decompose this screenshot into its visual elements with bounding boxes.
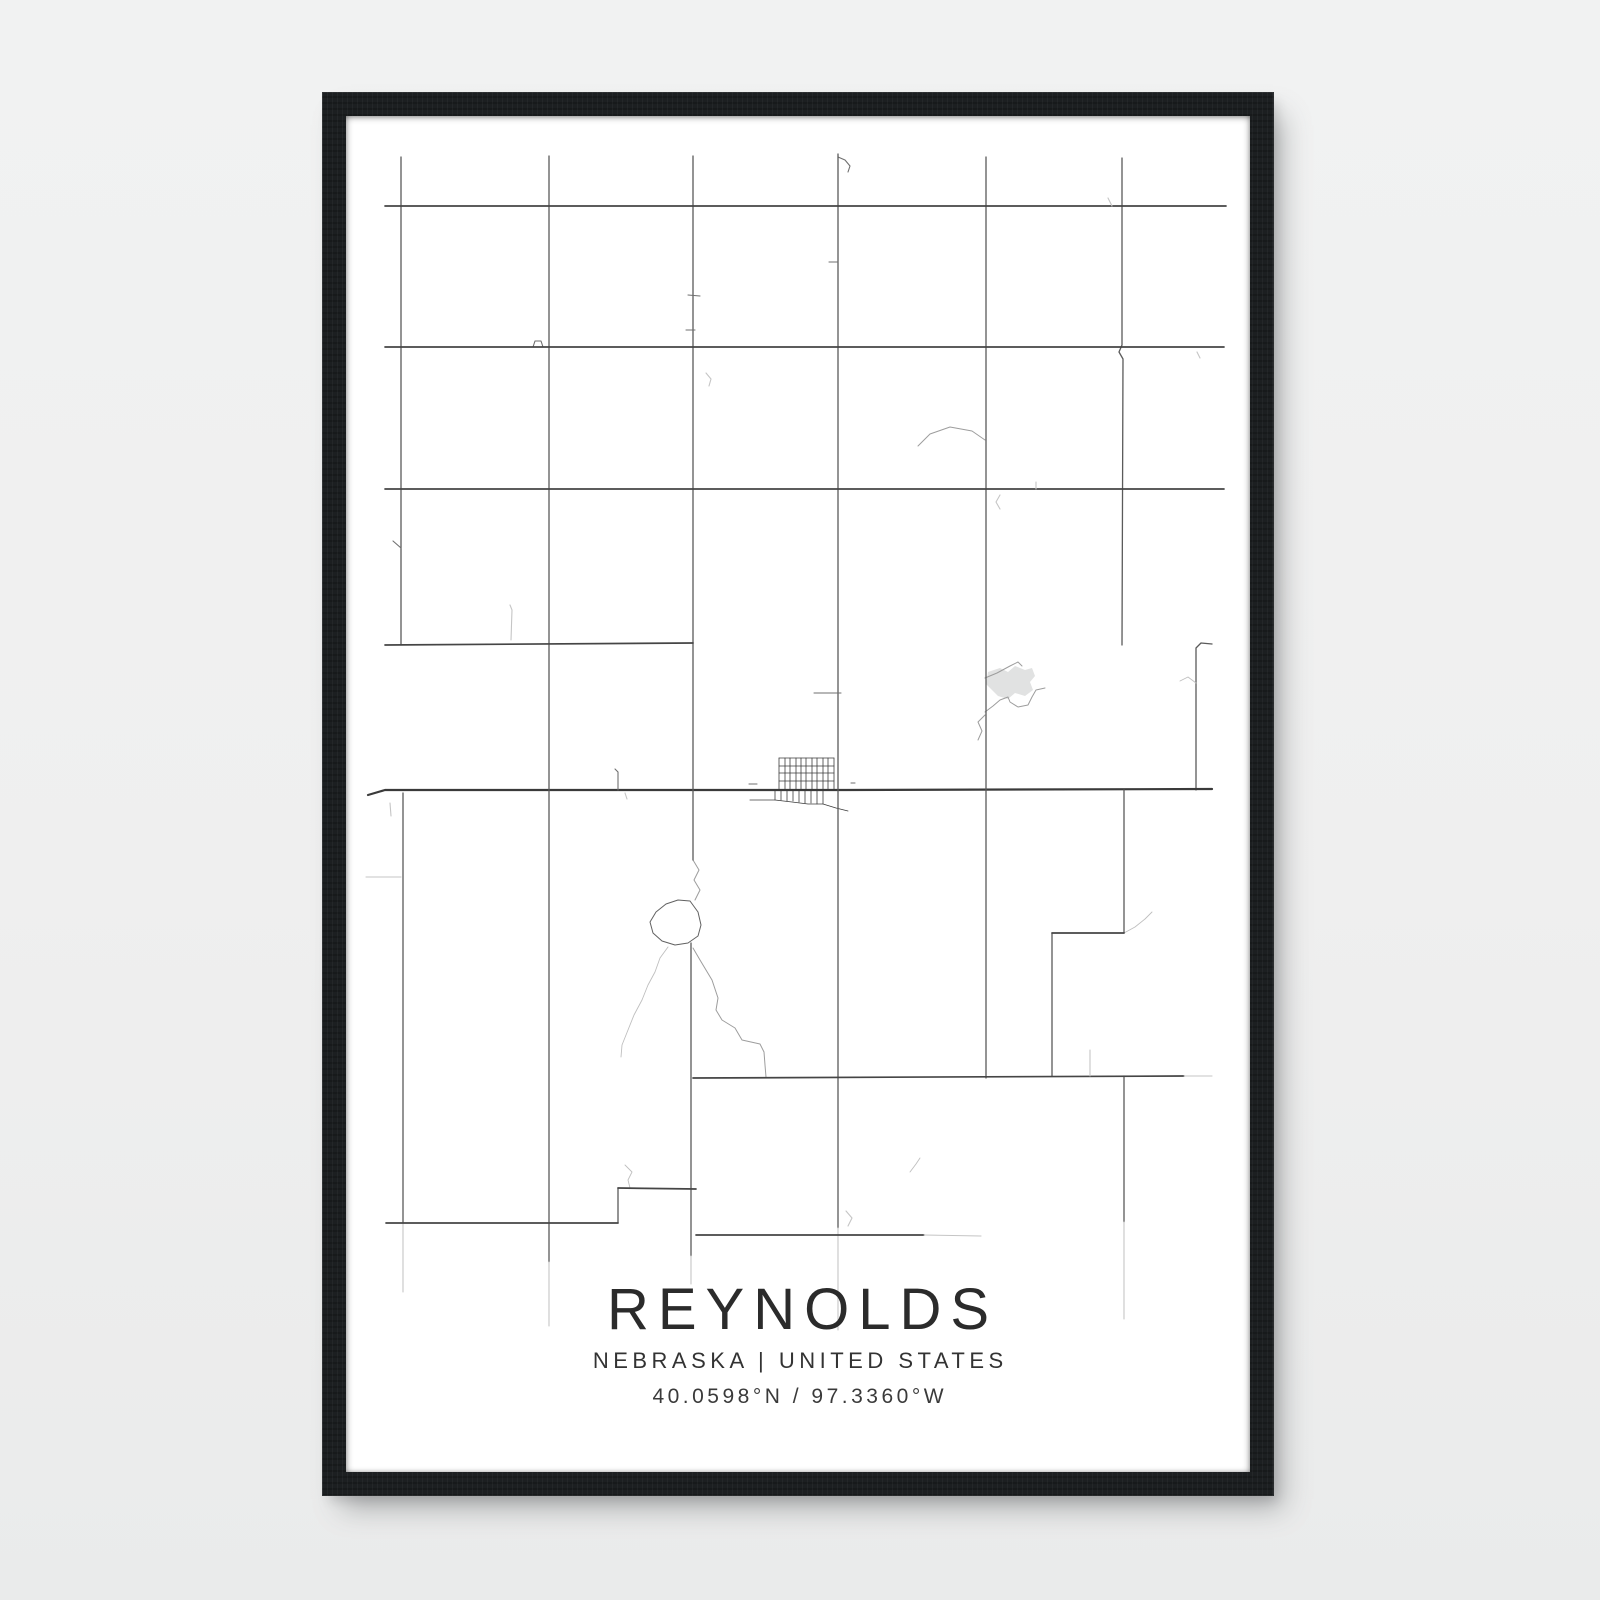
creek-line bbox=[978, 715, 985, 740]
creek-line bbox=[621, 947, 668, 1057]
road-line bbox=[1108, 198, 1112, 206]
road-line bbox=[838, 157, 850, 172]
poster-coordinates: 40.0598°N / 97.3360°W bbox=[346, 1384, 1250, 1409]
creek-line bbox=[693, 860, 700, 900]
pond bbox=[986, 666, 1035, 699]
road-line bbox=[1119, 158, 1123, 645]
road-line bbox=[615, 769, 618, 790]
road-line bbox=[618, 1188, 696, 1189]
poster-title: REYNOLDS bbox=[346, 1279, 1250, 1341]
road-line bbox=[1197, 352, 1200, 358]
creek-line bbox=[693, 948, 766, 1077]
poster-subtitle: NEBRASKA | UNITED STATES bbox=[346, 1348, 1250, 1374]
pond-outline bbox=[650, 900, 701, 945]
road-line bbox=[510, 605, 512, 640]
creek-line bbox=[910, 1158, 920, 1172]
road-line bbox=[688, 295, 700, 296]
road-line bbox=[996, 495, 1000, 509]
road-line bbox=[846, 1211, 852, 1226]
creek-line bbox=[1180, 677, 1196, 683]
road-line bbox=[775, 800, 848, 811]
road-line bbox=[393, 541, 401, 548]
creek-line bbox=[918, 427, 985, 446]
road-line bbox=[706, 373, 711, 386]
road-line bbox=[385, 643, 693, 645]
poster-frame: REYNOLDS NEBRASKA | UNITED STATES 40.059… bbox=[322, 92, 1274, 1496]
city-map bbox=[346, 116, 1250, 1472]
road-line bbox=[533, 341, 543, 347]
road-line bbox=[924, 1235, 981, 1236]
road-line bbox=[693, 1076, 1184, 1078]
road-line bbox=[1196, 643, 1212, 790]
road-line bbox=[625, 793, 627, 799]
product-photo-background: REYNOLDS NEBRASKA | UNITED STATES 40.059… bbox=[0, 0, 1600, 1600]
creek-line bbox=[1124, 912, 1152, 933]
creek-line bbox=[625, 1165, 632, 1188]
map-poster: REYNOLDS NEBRASKA | UNITED STATES 40.059… bbox=[346, 116, 1250, 1472]
road-line bbox=[390, 803, 391, 816]
